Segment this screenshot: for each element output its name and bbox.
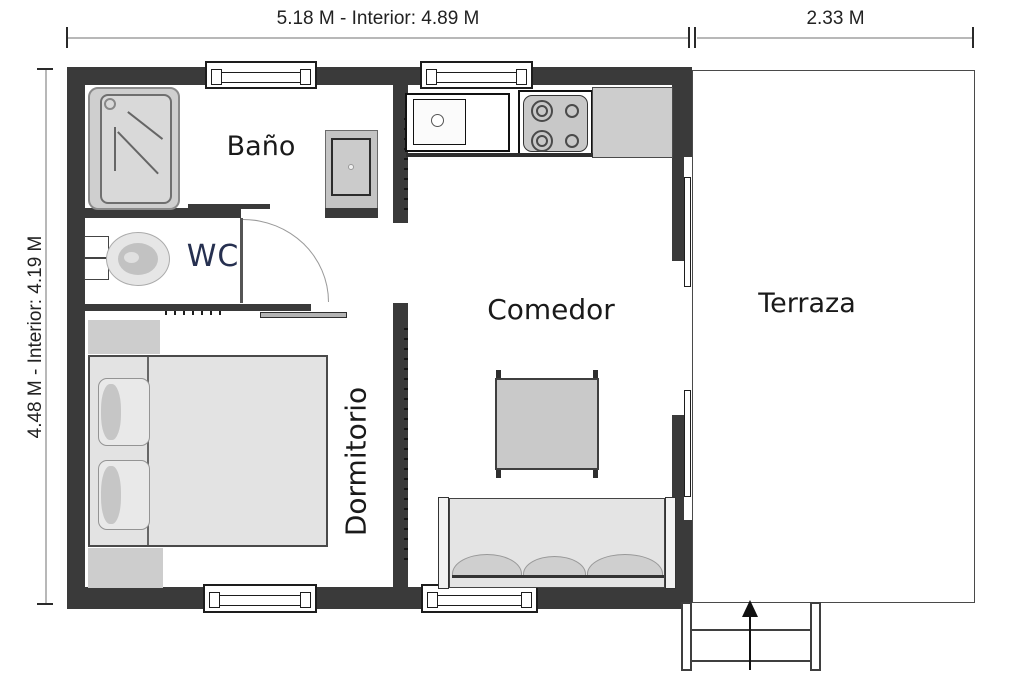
room-label-dining: Comedor — [461, 293, 641, 326]
door-lintel — [188, 204, 270, 209]
window-top-right — [420, 61, 533, 89]
burner-icon — [565, 134, 579, 148]
bed — [88, 355, 328, 547]
window-frame — [300, 592, 311, 608]
window-frame — [209, 592, 220, 608]
window-frame — [521, 592, 532, 608]
step-tread-line — [692, 629, 810, 631]
burner-icon — [536, 135, 548, 147]
window-bottom-left — [203, 584, 317, 613]
sliding-door-panel-glass-bottom — [684, 390, 691, 497]
dimension-tick — [37, 603, 53, 605]
window-frame — [428, 595, 531, 606]
window-frame — [211, 69, 222, 85]
dimension-label-top-main: 5.18 M - Interior: 4.89 M — [67, 8, 689, 30]
kitchen-counter-edge — [406, 153, 593, 157]
dining-table — [495, 378, 599, 470]
burner-icon — [536, 105, 548, 117]
window-frame — [427, 592, 438, 608]
window-frame — [210, 595, 310, 606]
bath-sink-cabinet — [325, 130, 378, 210]
shower — [88, 87, 180, 210]
shower-drain — [104, 98, 116, 110]
stove-unit — [518, 90, 593, 157]
sofa-armrest — [665, 497, 676, 589]
window-top-left — [205, 61, 317, 89]
room-label-bedroom: Dormitorio — [340, 352, 373, 572]
floor-plan: 5.18 M - Interior: 4.89 M 2.33 M 4.48 M … — [0, 0, 1027, 681]
step-stringer — [681, 602, 692, 671]
window-frame — [300, 69, 311, 85]
sliding-door-bedroom — [260, 312, 347, 318]
entrance-arrow-shaft — [749, 616, 751, 670]
kitchen-sink-drain — [431, 114, 444, 127]
wall-hatch — [404, 328, 408, 564]
exterior-wall-right-top — [672, 67, 692, 157]
dimension-tick — [66, 27, 68, 48]
kitchen-sink-unit — [405, 93, 510, 152]
dimension-tick — [688, 27, 690, 48]
exterior-wall-bottom — [67, 587, 692, 609]
toilet-bowl-highlight — [124, 252, 139, 263]
dimension-label-top-terrace: 2.33 M — [697, 8, 974, 30]
dimension-tick — [37, 68, 53, 70]
sofa-seat-edge — [452, 575, 664, 578]
pillow-fold — [101, 384, 121, 440]
dimension-tick — [694, 27, 696, 48]
window-frame — [516, 69, 527, 85]
dimension-line-top-main — [67, 37, 689, 39]
dimension-label-left: 4.48 M - Interior: 4.19 M — [25, 187, 47, 487]
window-frame — [212, 72, 310, 83]
room-label-terrace: Terraza — [717, 288, 897, 319]
terrace-outline — [692, 70, 975, 603]
room-label-wc: WC — [168, 239, 258, 274]
wall-hatch — [165, 311, 227, 315]
step-stringer — [810, 602, 821, 671]
nightstand-top — [88, 320, 160, 354]
burner-icon — [565, 104, 579, 118]
sofa-armrest — [438, 497, 449, 589]
dimension-tick — [972, 27, 974, 48]
window-frame — [427, 72, 526, 83]
exterior-wall-top — [67, 67, 692, 85]
pillow-fold — [101, 466, 121, 524]
nightstand-bottom — [88, 548, 163, 588]
bath-sink-base — [325, 208, 378, 218]
exterior-wall-left — [67, 67, 85, 609]
dimension-line-top-terrace — [697, 37, 974, 39]
room-label-bathroom: Baño — [196, 131, 326, 162]
step-tread-line — [692, 660, 810, 662]
shower-glass-line — [114, 127, 116, 171]
sliding-door-panel-dark-top — [672, 157, 684, 261]
entrance-arrow-icon — [742, 600, 758, 617]
partition-wc-bottom — [85, 304, 311, 311]
bath-sink-faucet — [348, 164, 354, 170]
sliding-door-panel-glass-top — [684, 177, 691, 287]
window-frame — [426, 69, 437, 85]
kitchen-counter — [592, 87, 673, 158]
